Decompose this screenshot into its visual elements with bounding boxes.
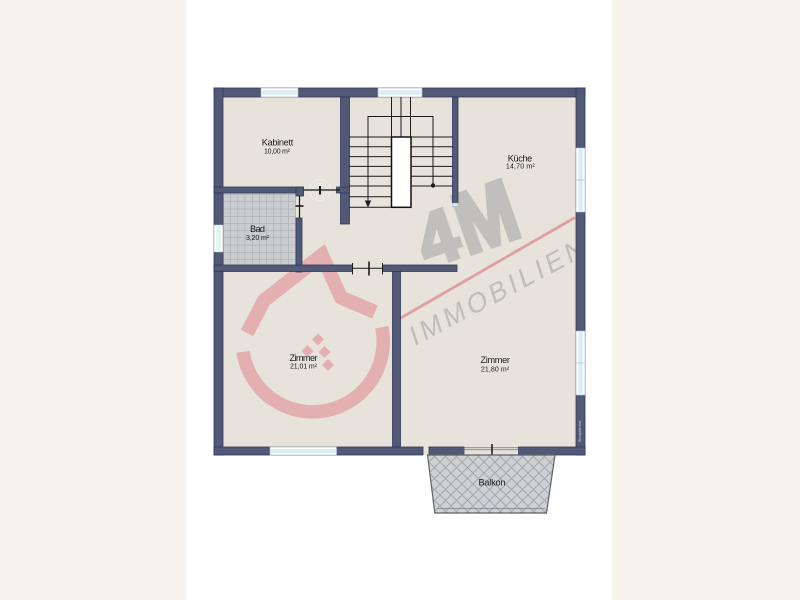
svg-text:floorplanner: floorplanner xyxy=(577,420,582,442)
svg-text:Balkon: Balkon xyxy=(479,478,506,488)
svg-text:Zimmer: Zimmer xyxy=(480,355,510,365)
svg-text:Kabinett: Kabinett xyxy=(262,138,294,148)
svg-text:Zimmer: Zimmer xyxy=(290,353,318,363)
svg-text:Küche: Küche xyxy=(508,153,532,163)
svg-text:Bad: Bad xyxy=(250,224,265,234)
svg-text:21,01 m²: 21,01 m² xyxy=(290,363,318,370)
svg-text:10,00 m²: 10,00 m² xyxy=(264,149,291,156)
svg-text:21,80 m²: 21,80 m² xyxy=(481,366,510,373)
svg-text:3,20 m²: 3,20 m² xyxy=(246,235,270,242)
svg-text:14,70 m²: 14,70 m² xyxy=(506,164,535,171)
